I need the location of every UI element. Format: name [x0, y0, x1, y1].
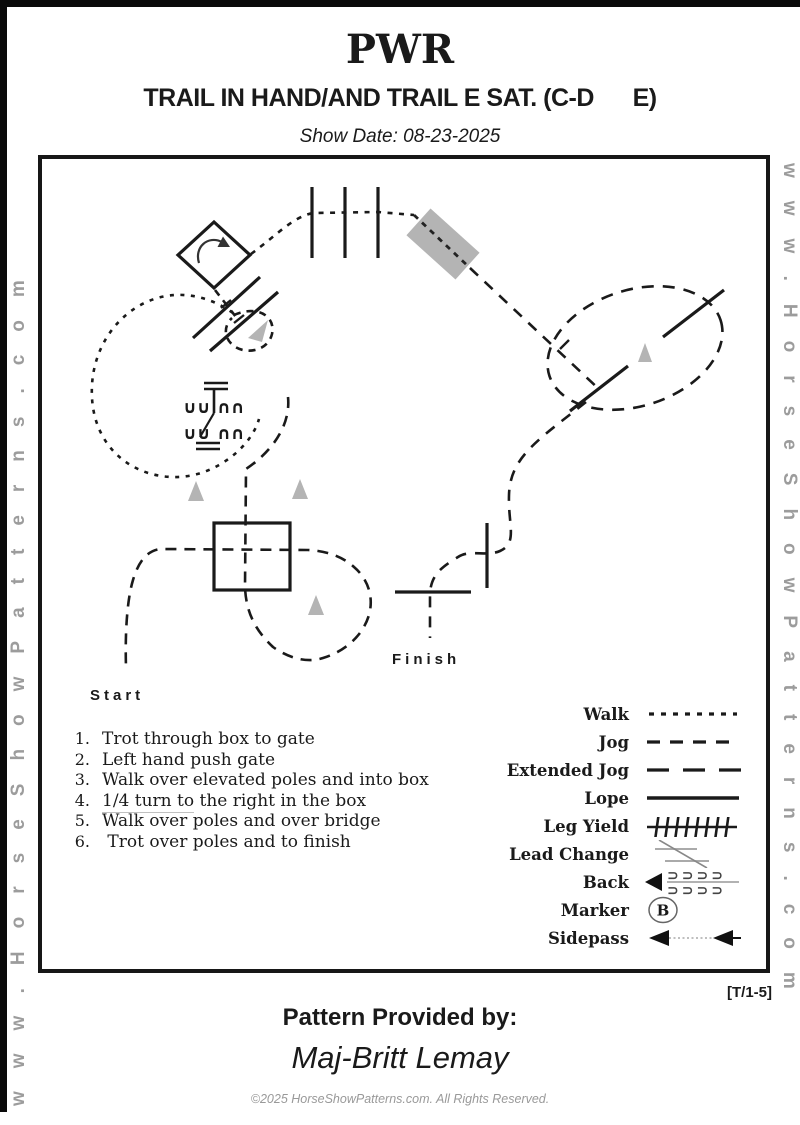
legend-row: Lead Change [494, 840, 745, 868]
legend-row: Back ⊃⊃⊃⊃ ⊃⊃⊃⊃ [494, 868, 745, 896]
back-icon: ⊃⊃⊃⊃ ⊃⊃⊃⊃ [645, 868, 745, 896]
svg-text:⊃⊃⊃⊃: ⊃⊃⊃⊃ [667, 868, 726, 884]
turn-box-diamond [178, 222, 250, 288]
page-title: PWR [0, 26, 800, 73]
trot-path [126, 397, 371, 667]
instruction-item: 5.Walk over poles and over bridge [64, 811, 429, 832]
provider-name: Maj-Britt Lemay [0, 1040, 800, 1076]
instruction-list: 1.Trot through box to gate 2.Left hand p… [64, 729, 429, 853]
svg-text:∩∩: ∩∩ [217, 424, 245, 444]
crossing-tick [560, 340, 569, 349]
pole-line [210, 292, 278, 351]
legend-row: Jog [494, 728, 745, 756]
legend-row: Sidepass [494, 924, 745, 952]
watermark-right: www.HorseShowPatterns.com [778, 163, 800, 1012]
sidepass-icon [645, 924, 745, 952]
instruction-item: 2.Left hand push gate [64, 750, 429, 771]
walk-line-icon [645, 700, 745, 728]
jog-line-icon [645, 728, 745, 756]
extended-jog-line-icon [645, 756, 745, 784]
page-edge-left [0, 0, 7, 1112]
legend-row: Marker B [494, 896, 745, 924]
instruction-item: 3.Walk over elevated poles and into box [64, 770, 429, 791]
finish-label: Finish [392, 651, 460, 668]
pattern-sheet-page: www.HorseShowPatterns.com www.HorseShowP… [0, 0, 800, 1125]
svg-text:∪∪: ∪∪ [183, 424, 211, 444]
jog-diagonal-path [470, 268, 601, 391]
obstacle-box [214, 523, 290, 590]
gate-icon: ∪∪ ∩∩ ∪∪ ∩∩ [183, 383, 245, 449]
leg-yield-icon [645, 812, 745, 840]
legend: Walk Jog Extended Jog Lope [494, 700, 745, 952]
instruction-item: 4.1/4 turn to the right in the box [64, 791, 429, 812]
marker-icon: B [645, 896, 745, 924]
svg-text:⊃⊃⊃⊃: ⊃⊃⊃⊃ [667, 883, 726, 896]
turn-arrow-icon [198, 240, 222, 263]
svg-text:∪∪: ∪∪ [183, 398, 211, 418]
lead-change-icon [645, 840, 745, 868]
pattern-code: [T/1-5] [727, 984, 772, 1001]
cone-icon [292, 479, 308, 499]
watermark-left: www.HorseShowPatterns.com [8, 257, 30, 1106]
pattern-diagram-box: ∪∪ ∩∩ ∪∪ ∩∩ Start Finish 1.Trot through … [38, 155, 770, 973]
cone-icon [638, 343, 652, 362]
pole-line [663, 290, 724, 337]
legend-row: Lope [494, 784, 745, 812]
walk-poles-path [251, 212, 414, 254]
page-edge-top [0, 0, 800, 7]
show-date: Show Date: 08-23-2025 [0, 126, 800, 148]
finish-approach-path [430, 402, 586, 638]
copyright-text: ©2025 HorseShowPatterns.com. All Rights … [0, 1092, 800, 1106]
svg-text:∩∩: ∩∩ [217, 398, 245, 418]
lope-line-icon [645, 784, 745, 812]
svg-text:B: B [657, 902, 670, 920]
legend-row: Walk [494, 700, 745, 728]
instruction-item: 1.Trot through box to gate [64, 729, 429, 750]
provided-by-heading: Pattern Provided by: [0, 1004, 800, 1032]
instruction-item: 6. Trot over poles and to finish [64, 832, 429, 853]
cone-icon [188, 481, 204, 501]
legend-row: Extended Jog [494, 756, 745, 784]
legend-row: Leg Yield [494, 812, 745, 840]
cone-icon [308, 595, 324, 615]
class-subtitle: TRAIL IN HAND/AND TRAIL E SAT. (C-D E) [0, 84, 800, 113]
pole-line [570, 366, 628, 411]
direction-arrow-icon [248, 320, 268, 342]
start-label: Start [90, 687, 144, 704]
